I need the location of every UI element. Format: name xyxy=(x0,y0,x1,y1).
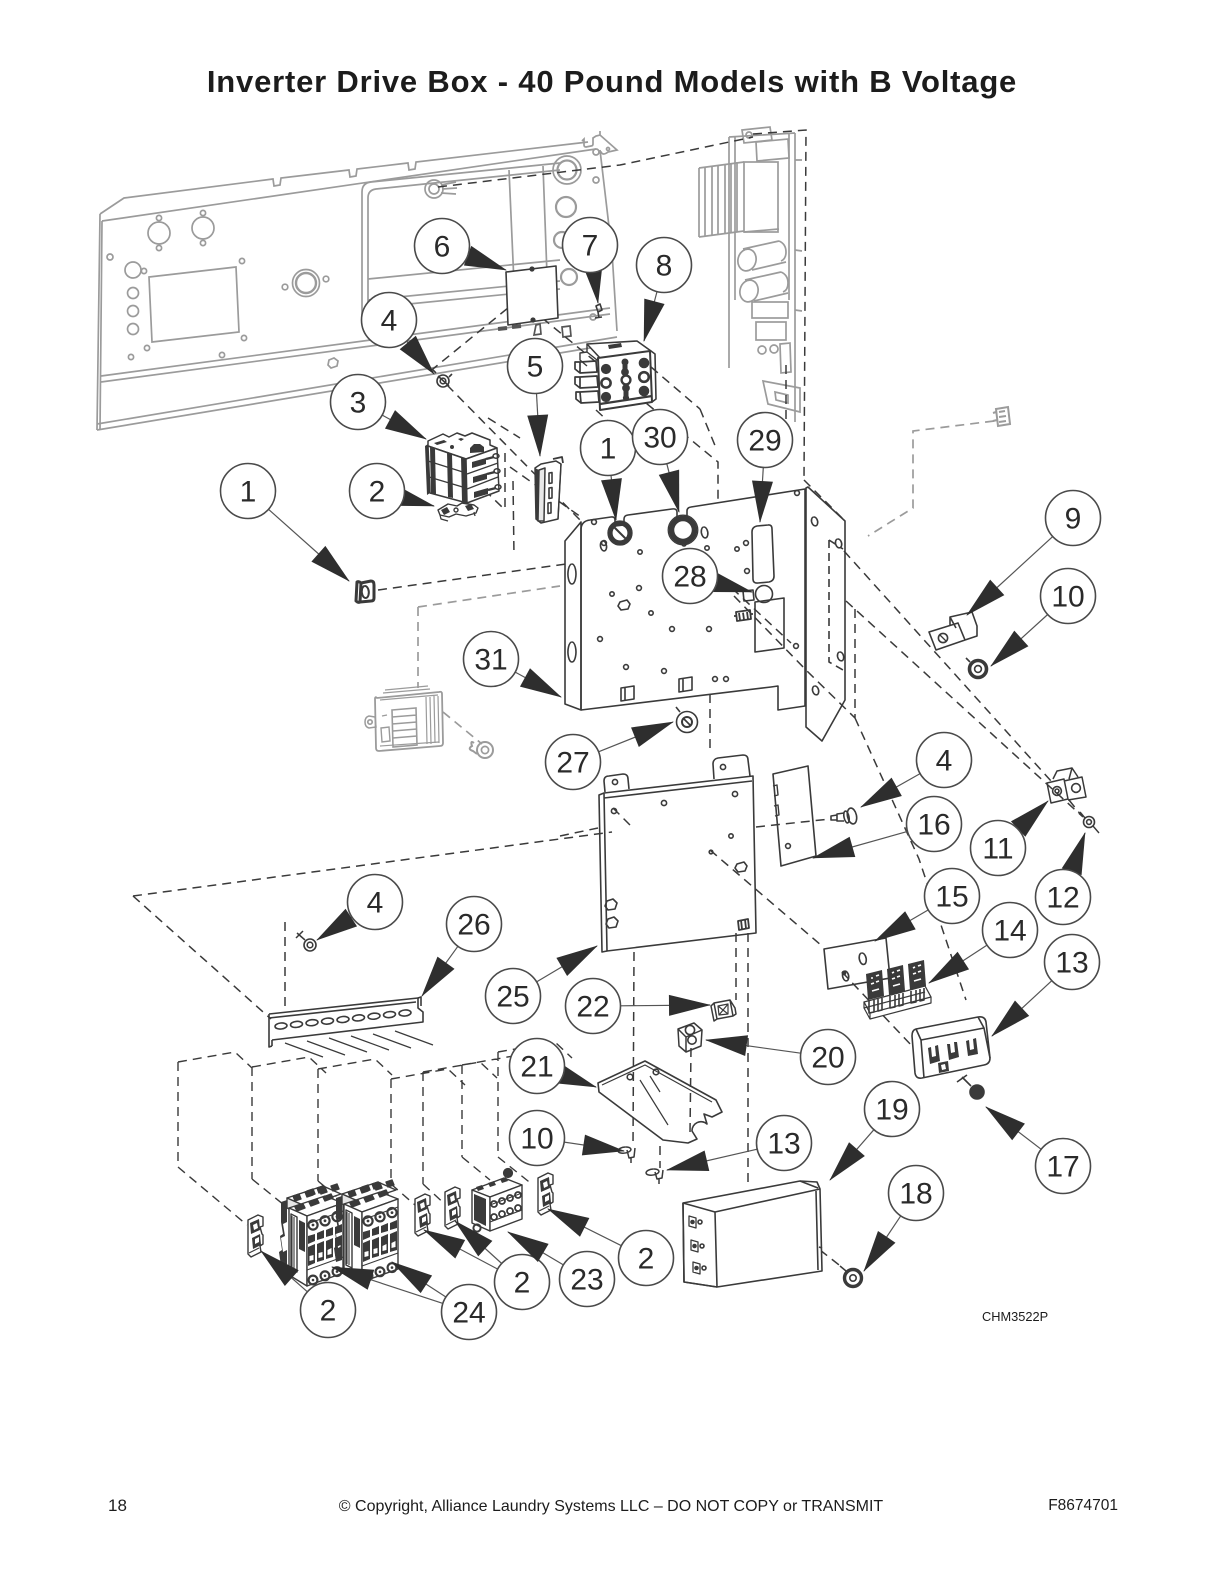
svg-text:13: 13 xyxy=(1055,947,1088,980)
svg-text:15: 15 xyxy=(935,881,968,914)
svg-text:1: 1 xyxy=(600,433,617,466)
svg-text:28: 28 xyxy=(673,561,706,594)
svg-text:© Copyright, Alliance Laundry: © Copyright, Alliance Laundry Systems LL… xyxy=(339,1498,884,1515)
svg-text:13: 13 xyxy=(767,1128,800,1161)
svg-text:4: 4 xyxy=(367,887,384,920)
svg-text:22: 22 xyxy=(576,991,609,1024)
svg-text:4: 4 xyxy=(936,745,953,778)
svg-text:10: 10 xyxy=(1051,581,1084,614)
svg-text:F8674701: F8674701 xyxy=(1048,1497,1118,1514)
svg-text:16: 16 xyxy=(917,809,950,842)
svg-text:12: 12 xyxy=(1046,882,1079,915)
svg-text:29: 29 xyxy=(748,425,781,458)
svg-text:11: 11 xyxy=(982,833,1013,866)
svg-text:31: 31 xyxy=(474,644,507,677)
svg-text:18: 18 xyxy=(899,1178,932,1211)
svg-text:20: 20 xyxy=(811,1042,844,1075)
svg-text:27: 27 xyxy=(556,747,589,780)
svg-text:17: 17 xyxy=(1046,1151,1079,1184)
svg-text:9: 9 xyxy=(1065,503,1082,536)
svg-text:8: 8 xyxy=(656,250,673,283)
svg-text:19: 19 xyxy=(875,1094,908,1127)
svg-text:2: 2 xyxy=(638,1243,655,1276)
svg-text:CHM3522P: CHM3522P xyxy=(982,1309,1048,1324)
svg-text:7: 7 xyxy=(582,230,599,263)
svg-text:Inverter Drive Box - 40 Pound: Inverter Drive Box - 40 Pound Models wit… xyxy=(207,64,1017,99)
svg-text:10: 10 xyxy=(520,1123,553,1156)
svg-text:30: 30 xyxy=(643,422,676,455)
svg-text:2: 2 xyxy=(369,476,386,509)
svg-text:25: 25 xyxy=(496,981,529,1014)
svg-text:21: 21 xyxy=(520,1051,553,1084)
svg-text:24: 24 xyxy=(452,1297,485,1330)
svg-text:14: 14 xyxy=(993,915,1026,948)
svg-text:18: 18 xyxy=(108,1496,127,1515)
svg-text:2: 2 xyxy=(514,1267,531,1300)
svg-text:1: 1 xyxy=(240,476,257,509)
svg-text:4: 4 xyxy=(381,305,398,338)
svg-text:26: 26 xyxy=(457,909,490,942)
svg-text:5: 5 xyxy=(527,351,544,384)
svg-text:2: 2 xyxy=(320,1295,337,1328)
svg-text:6: 6 xyxy=(434,231,451,264)
svg-text:3: 3 xyxy=(350,387,367,420)
svg-text:23: 23 xyxy=(570,1264,603,1297)
